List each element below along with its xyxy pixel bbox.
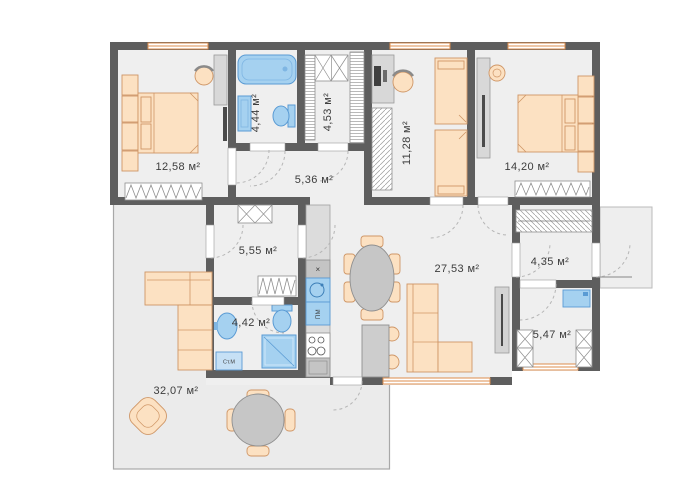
computer [374,66,381,86]
label-kids-room: 11,28 м² [401,121,413,165]
label-hallway1: 5,36 м² [295,174,334,186]
entry-hall-wardrobe [516,210,592,232]
label-bathroom2: 4,42 м² [232,317,271,329]
label-bedroom1: 12,58 м² [155,161,200,173]
dresser [214,55,227,105]
label-entry: 4,35 м² [531,256,570,268]
label-wardrobe1: 4,53 м² [322,93,334,132]
floor-plan-svg: Ст.М × ПМ [0,0,682,502]
entry-porch [600,207,652,288]
label-bathroom1: 4,44 м² [250,94,262,133]
hood-label: × [315,265,320,274]
label-laundry: 5,47 м² [533,329,572,341]
tv [223,107,227,141]
bar-counter [362,325,389,377]
label-hallway2: 5,55 м² [239,245,278,257]
label-living: 27,53 м² [434,263,479,275]
label-bedroom2: 14,20 м² [504,161,549,173]
floor-plan-page: Ст.М × ПМ [0,0,682,502]
plant [489,65,505,81]
desk-chair [393,72,413,92]
terrace-table [232,394,284,446]
dining-table [350,245,394,311]
tv [482,95,485,147]
washing-machine-label: Ст.М [223,360,235,366]
label-terrace: 32,07 м² [153,385,198,397]
kitchen-counter: × ПМ [306,205,330,377]
dishwasher-label: ПМ [316,309,322,319]
